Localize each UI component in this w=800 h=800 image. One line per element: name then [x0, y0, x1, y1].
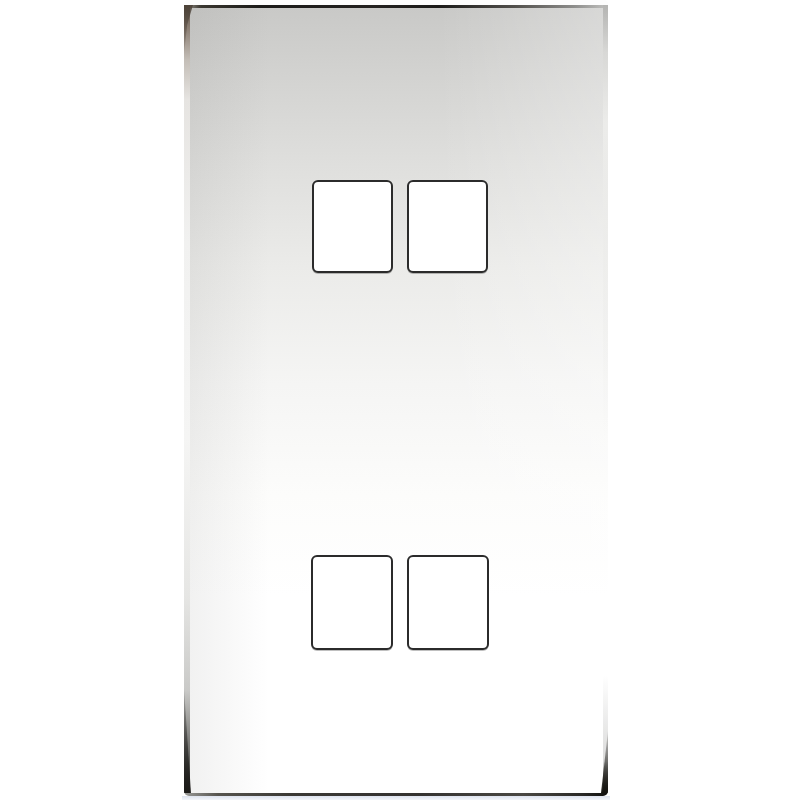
- cutout-top-right: [407, 180, 488, 273]
- plate-left-edge: [184, 5, 190, 793]
- cutout-top-left: [312, 180, 393, 273]
- cutout-bottom-left: [311, 555, 393, 650]
- plate-face: [184, 8, 608, 793]
- plate-top-edge-line: [184, 5, 608, 8]
- plate-right-edge: [603, 5, 608, 793]
- faceplate: [184, 0, 608, 796]
- product-photo: [0, 0, 800, 800]
- plate-under-shadow: [182, 796, 610, 800]
- cutout-bottom-right: [407, 555, 489, 650]
